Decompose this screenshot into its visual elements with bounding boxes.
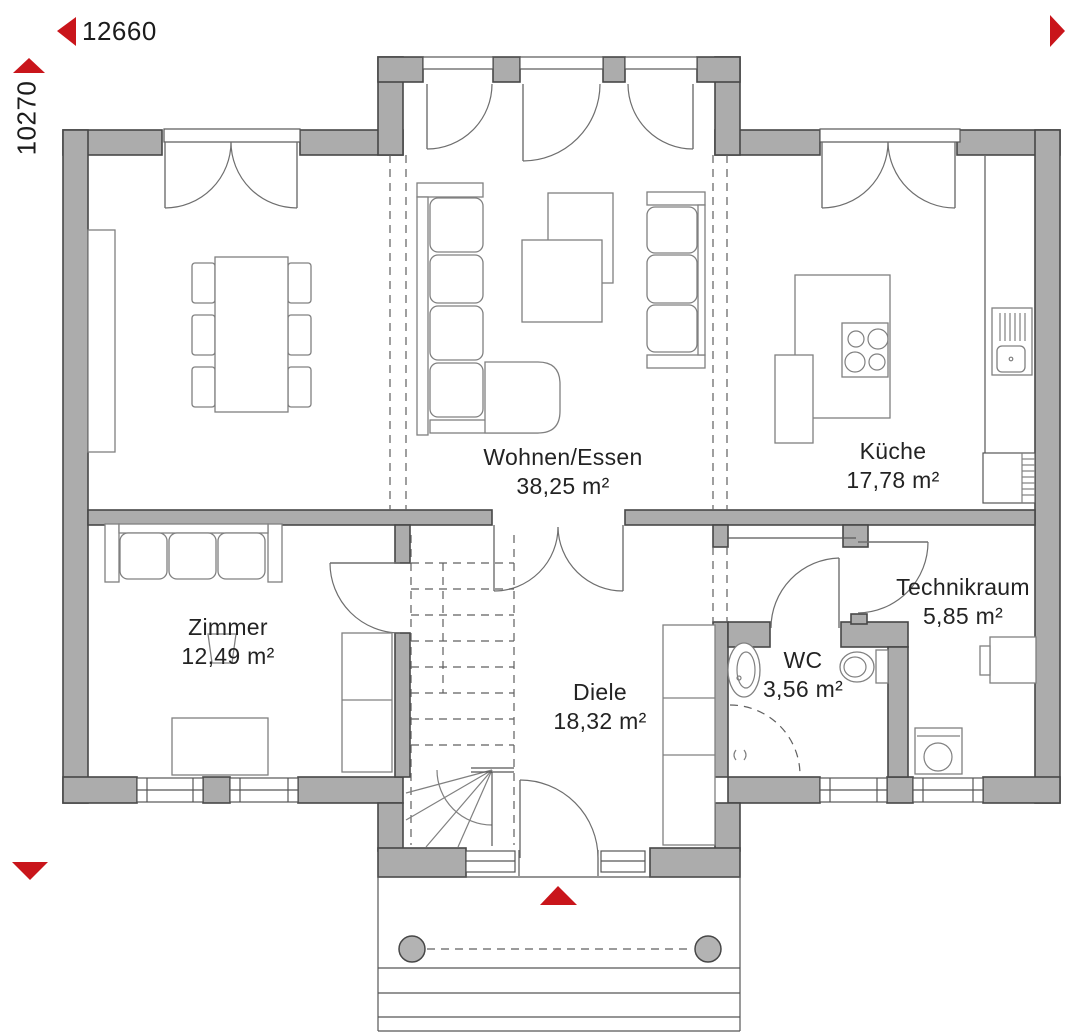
wc-door — [771, 558, 839, 628]
room-area: 12,49 m² — [181, 642, 274, 671]
washbasin — [728, 643, 760, 697]
room-name: WC — [763, 646, 843, 675]
bay-door-right — [628, 84, 693, 149]
technik-table-side — [980, 646, 990, 675]
bay-door-left — [427, 84, 492, 149]
room-area: 5,85 m² — [896, 602, 1030, 631]
living-hall-double-door — [494, 525, 623, 591]
room-area: 17,78 m² — [846, 466, 939, 495]
room-area: 18,32 m² — [553, 707, 646, 736]
room-name: Zimmer — [181, 613, 274, 642]
room-label-wc: WC 3,56 m² — [763, 646, 843, 704]
kitchen-door-glazing — [820, 129, 960, 142]
kitchen-island-extension — [775, 355, 813, 443]
room-name: Küche — [846, 437, 939, 466]
wc-dashed-swing — [730, 705, 800, 775]
toilet — [840, 650, 888, 683]
room-area: 38,25 m² — [483, 472, 642, 501]
bay-window-left — [423, 57, 493, 69]
washing-machine — [915, 728, 962, 774]
dimension-arrow-right-icon — [1050, 15, 1065, 47]
furniture-dining — [88, 230, 311, 452]
porch-column — [695, 936, 721, 962]
window-zimmer-2 — [230, 778, 298, 802]
room-label-technikraum: Technikraum 5,85 m² — [896, 573, 1030, 631]
window-entry-right — [601, 851, 645, 872]
window-wc — [820, 778, 887, 802]
desk — [172, 718, 268, 775]
window-technikraum — [913, 778, 983, 802]
kitchen-base-unit — [983, 453, 1035, 503]
dimension-width-label: 12660 — [82, 16, 157, 47]
zimmer-door — [330, 563, 400, 633]
cooktop — [842, 323, 888, 377]
kitchen-sink — [992, 308, 1032, 375]
porch-column — [399, 936, 425, 962]
bay-door-middle — [523, 84, 600, 161]
room-name: Wohnen/Essen — [483, 443, 642, 472]
bay-window-right — [625, 57, 697, 69]
furniture-living — [417, 183, 705, 435]
furniture-hall — [663, 625, 715, 845]
room-label-kueche: Küche 17,78 m² — [846, 437, 939, 495]
technik-table — [990, 637, 1036, 683]
dining-french-door — [165, 142, 297, 208]
furniture-technikraum — [915, 637, 1036, 774]
sideboard — [88, 230, 115, 452]
room-label-diele: Diele 18,32 m² — [553, 678, 646, 736]
dining-table — [215, 257, 288, 412]
room-area: 3,56 m² — [763, 675, 843, 704]
dimension-arrow-left-icon — [57, 17, 76, 46]
window-zimmer-1 — [137, 778, 203, 802]
room-name: Technikraum — [896, 573, 1030, 602]
wc-floor-mark — [734, 750, 746, 760]
window-entry-left — [466, 851, 515, 872]
floor-plan-page: 12660 10270 Wohnen/Essen 38,25 m² Küche … — [0, 0, 1080, 1033]
small-sofa — [647, 192, 705, 368]
bay-window-middle — [520, 57, 603, 69]
kitchen-french-door — [822, 142, 955, 208]
zimmer-sofa — [105, 524, 282, 582]
dimension-arrow-up-icon — [13, 58, 45, 73]
floor-plan-drawing — [0, 0, 1080, 1033]
dimension-height-label: 10270 — [12, 81, 43, 156]
dimension-arrow-down-icon — [12, 862, 48, 880]
front-door — [519, 780, 598, 876]
room-label-zimmer: Zimmer 12,49 m² — [181, 613, 274, 671]
coffee-tables — [522, 193, 613, 322]
hall-wardrobe — [663, 625, 715, 845]
room-name: Diele — [553, 678, 646, 707]
entrance-arrow-icon — [540, 886, 577, 905]
staircase — [406, 535, 514, 847]
dining-door-glazing — [164, 129, 300, 142]
zimmer-wardrobe — [342, 633, 392, 772]
room-label-wohnen-essen: Wohnen/Essen 38,25 m² — [483, 443, 642, 501]
